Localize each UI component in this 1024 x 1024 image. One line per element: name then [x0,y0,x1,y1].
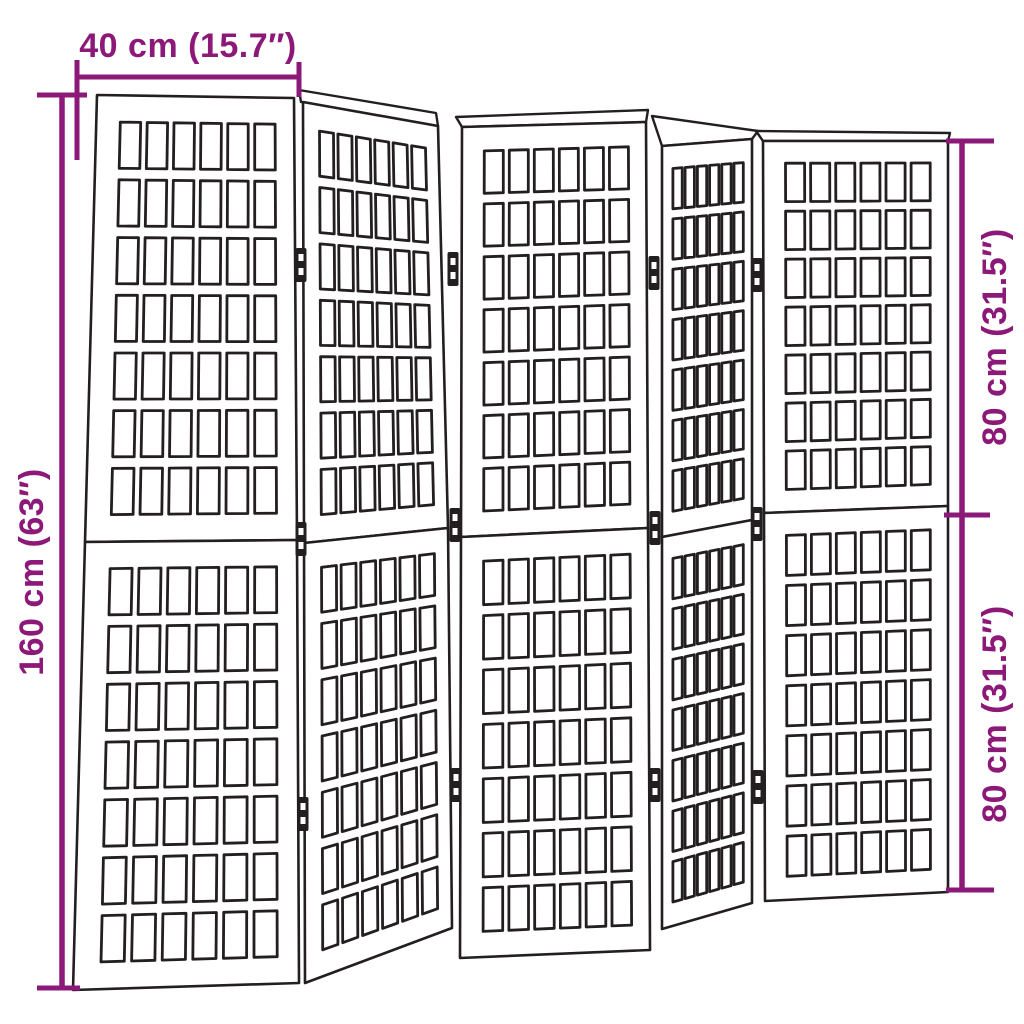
lattice-cell [115,295,137,341]
lattice-cell [534,255,553,298]
lattice-cell [193,855,216,902]
lattice-cell [886,353,905,391]
lattice-cell [534,360,553,403]
lattice-cell [105,742,129,789]
lattice-cell [886,531,905,572]
lattice-cell [560,829,580,874]
lattice-cell [710,413,719,454]
lattice-cell [673,419,682,461]
lattice-cell [226,567,248,613]
lattice-cell [198,353,220,399]
lattice-cell [697,266,706,307]
lattice-cell [322,844,337,894]
lattice-cell [401,715,416,761]
lattice-cell [342,728,357,776]
lattice-cell [342,673,357,720]
lattice-cell [108,626,131,673]
lattice-cell [255,353,276,399]
lattice-cell [340,357,355,402]
lattice-cell [611,718,631,763]
lattice-cell [734,743,743,785]
lattice-cell [697,702,706,744]
lattice-cell [255,624,277,670]
lattice-cell [225,682,248,728]
lattice-cell [171,296,193,342]
lattice-cell [585,358,604,401]
lattice-cell [611,663,631,708]
lattice-cell [812,784,831,825]
panel-2 [299,90,452,983]
lattice-cell [612,827,632,872]
lattice-cell [685,217,694,258]
lattice-cell [509,255,528,298]
lattice-cell [196,567,218,613]
lattice-cell [357,192,372,237]
lattice-cell [585,555,605,600]
lattice-cell [509,722,528,767]
lattice-cell [861,632,880,673]
lattice-cell [697,752,706,795]
lattice-cell [862,682,881,723]
lattice-cell [697,166,706,207]
lattice-cell [193,913,217,960]
lattice-cell [722,461,731,502]
lattice-cell [362,724,377,771]
lattice-cell [886,447,905,486]
lattice-cell [255,410,277,456]
lattice-cell [861,258,880,296]
lattice-cell [254,911,277,958]
lattice-cell [559,148,578,191]
lattice-cell [911,352,930,390]
lattice-cell [610,199,629,242]
lattice-cell [483,833,503,877]
lattice-cell [861,211,880,249]
lattice-cell [227,181,248,227]
lattice-cell [226,468,248,514]
lattice-cell [697,652,706,694]
lattice-cell [341,618,356,665]
lattice-cell [586,883,606,928]
lattice-cell [612,772,632,817]
lattice-cell [560,464,579,507]
lattice-cell [786,355,805,394]
lattice-cell [611,462,630,505]
lattice-cell [138,568,161,615]
lattice-cell [414,252,429,295]
lattice-cell [535,558,554,603]
lattice-cell [886,581,905,622]
lattice-cell [195,740,218,787]
lattice-cell [836,211,855,249]
panel-3 [456,110,650,958]
lattice-cell [375,140,390,185]
hinge-icon [296,522,307,556]
lattice-cell [362,832,377,880]
lattice-cell [382,827,397,875]
lattice-cell [585,305,604,348]
lattice-cell [836,583,855,624]
lattice-cell [837,733,856,774]
lattice-cell [585,411,604,454]
lattice-cell [321,413,336,459]
lattice-cell [340,412,355,457]
lattice-cell [673,168,682,209]
product-dimension-diagram: 40 cm (15.7″) 160 cm (63″) 80 cm (31.5″)… [0,0,1024,1024]
lattice-cell [255,567,277,613]
lattice-cell [837,783,856,824]
lattice-cell [195,682,218,729]
lattice-cell [396,304,411,347]
lattice-cell [734,545,743,587]
lattice-cell [341,467,356,513]
lattice-cell [586,719,606,763]
lattice-cell [685,417,694,459]
lattice-cell [685,604,694,646]
lattice-cell [697,365,706,406]
lattice-cell [509,308,528,351]
lattice-cell [722,164,731,205]
lattice-cell [412,146,427,190]
hinge-icon [296,248,307,282]
lattice-cell [862,832,881,873]
lattice-cell [722,597,731,639]
panels [73,90,950,990]
lattice-cell [135,741,158,788]
lattice-cell [227,353,248,399]
lattice-cell [836,401,855,440]
lattice-cell [734,212,743,253]
lattice-cell [322,788,337,837]
lattice-cell [560,666,580,711]
lattice-cell [534,413,553,456]
lattice-cell [483,669,503,714]
lattice-cell [722,547,731,589]
lattice-cell [585,200,604,243]
lattice-cell [509,467,528,510]
lattice-cell [361,615,376,661]
lattice-cell [673,557,682,599]
lattice-cell [911,447,930,486]
lattice-cell [886,258,905,296]
lattice-cell [111,468,134,514]
lattice-cell [911,305,930,343]
lattice-cell [165,741,188,788]
lattice-cell [609,147,628,190]
lattice-cell [142,353,164,399]
lattice-cell [560,557,579,602]
lattice-cell [377,303,392,347]
lattice-cell [861,532,880,573]
lattice-cell [861,582,880,623]
lattice-cell [199,296,221,342]
lattice-cell [255,239,276,285]
lattice-cell [710,214,719,255]
hinge-icon [450,508,461,542]
lattice-cell [861,353,880,392]
lattice-cell [734,360,743,401]
hinge-icon [752,258,763,292]
lattice-cell [484,415,503,458]
lattice-cell [811,306,830,345]
lattice-cell [584,148,603,191]
lattice-cell [254,853,277,900]
lattice-cell [422,867,438,914]
lattice-cell [395,250,410,294]
lattice-cell [697,552,706,594]
lattice-cell [685,467,694,509]
lattice-cell [862,732,881,773]
lattice-cell [509,777,529,822]
lattice-cell [673,369,682,411]
lattice-cell [484,362,503,405]
lattice-cell [169,468,191,514]
panel-top-edge [756,131,950,141]
panel-1 [73,95,299,990]
lattice-cell [141,411,163,457]
lattice-cell [861,448,880,487]
lattice-cell [722,696,731,738]
lattice-cell [361,669,376,716]
lattice-cell [402,874,418,922]
lattice-cell [321,469,336,515]
lattice-cell [136,683,159,730]
lattice-cell [811,259,830,298]
lattice-cell [911,163,930,201]
lattice-cell [611,554,631,599]
lattice-cell [401,662,416,708]
lattice-cell [812,634,831,675]
lattice-cell [358,247,373,292]
lattice-cell [535,667,555,712]
lattice-cell [378,357,393,401]
lattice-cell [787,735,806,776]
lattice-cell [163,856,187,903]
lattice-cell [227,296,248,342]
lattice-cell [673,758,682,801]
lattice-cell [397,358,412,401]
lattice-cell [255,124,276,170]
lattice-cell [134,799,158,846]
lattice-cell [114,353,136,399]
lattice-cell [102,857,126,904]
lattice-cell [861,401,880,440]
lattice-cell [586,664,606,709]
lattice-cell [911,258,930,296]
lattice-cell [255,181,276,227]
lattice-cell [509,150,528,193]
lattice-cell [342,783,357,831]
lattice-cell [911,630,930,671]
lattice-cell [673,657,682,700]
lattice-cell [483,778,503,822]
lattice-cell [226,410,248,456]
lattice-cell [812,734,831,775]
lattice-cell [356,137,371,183]
lattice-cell [132,914,156,961]
lattice-cell [418,463,434,506]
lattice-cell [196,625,219,671]
lattice-cell [484,468,503,511]
lattice-cell [837,833,856,874]
lattice-cell [320,131,334,178]
lattice-cell [118,180,140,226]
lattice-cell [166,625,189,671]
lattice-cell [339,245,354,290]
lattice-cell [484,560,503,605]
lattice-cell [585,463,604,506]
lattice-cell [560,884,580,929]
lattice-cell [787,685,806,726]
lattice-cell [585,253,604,296]
lattice-cell [322,733,337,781]
lattice-cell [194,797,217,844]
lattice-cell [685,755,694,798]
lattice-cell [734,410,743,451]
lattice-cell [228,124,249,170]
lattice-cell [509,203,528,246]
lattice-cell [560,359,579,402]
lattice-cell [685,367,694,409]
lattice-cell [358,302,373,346]
lattice-cell [911,730,930,771]
lattice-cell [338,134,352,180]
lattice-cell [787,835,806,876]
lattice-cell [722,312,731,353]
lattice-cell [534,149,553,192]
lattice-cell [673,708,682,751]
lattice-cell [560,775,580,820]
lattice-cell [710,849,719,892]
lattice-cell [685,856,694,899]
lattice-cell [811,163,830,201]
lattice-cell [786,535,805,576]
lattice-cell [710,549,719,591]
lattice-cell [376,249,391,293]
lattice-cell [697,852,706,895]
lattice-cell [786,307,805,346]
lattice-cell [560,254,579,297]
lattice-cell [362,887,377,936]
lattice-cell [101,915,125,962]
lattice-cell [673,607,682,649]
lattice-cell [685,655,694,697]
lattice-cell [144,238,166,284]
lattice-cell [394,197,409,241]
lattice-cell [227,238,248,284]
lattice-cell [420,554,435,598]
lattice-cell [811,354,830,393]
lattice-cell [722,746,731,788]
hinge-icon [451,768,462,802]
lattice-cell [886,631,905,672]
lattice-cell [483,887,503,931]
lattice-cell [224,854,247,901]
lattice-cell [610,410,629,453]
lattice-cell [786,259,805,298]
lattice-cell [323,900,338,950]
lattice-cell [685,705,694,747]
lattice-cell [133,857,157,904]
lattice-cell [836,449,855,488]
lattice-cell [911,580,930,621]
hinge-icon [752,507,763,541]
lattice-cell [710,649,719,691]
lattice-cell [382,773,397,820]
lattice-cell [197,468,219,514]
lattice-cell [786,211,805,250]
lattice-cell [117,238,139,284]
hinge-icon [650,768,661,802]
lattice-cell [722,362,731,403]
lattice-cell [509,559,528,604]
lattice-cell [886,163,905,201]
lattice-cell [421,710,436,756]
lattice-cell [560,412,579,455]
lattice-cell [886,681,905,722]
lattice-cell [376,194,391,239]
lattice-cell [786,451,805,490]
lattice-cell [484,203,503,246]
hinge-icon [753,770,764,804]
lattice-cell [320,244,335,290]
lattice-cell [320,188,334,234]
lattice-cell [342,838,357,887]
lattice-cell [322,566,337,613]
lattice-cell [162,913,186,960]
lattice-cell [862,782,881,823]
lattice-cell [722,647,731,689]
lattice-cell [911,210,930,248]
lattice-cell [535,721,555,765]
lattice-cell [911,780,930,821]
lattice-cell [722,796,731,838]
lattice-cell [172,238,194,284]
lattice-cell [710,364,719,405]
lattice-cell [145,180,166,226]
lattice-cell [170,411,192,457]
lattice-cell [610,305,629,348]
lattice-cell [173,123,194,169]
lattice-cell [361,561,376,607]
lattice-cell [911,399,930,437]
lattice-cell [886,400,905,439]
lattice-cell [836,533,855,574]
lattice-cell [254,739,277,785]
lattice-cell [710,463,719,505]
lattice-cell [509,831,529,875]
lattice-cell [812,684,831,725]
lattice-cell [722,263,731,304]
lattice-cell [811,534,830,575]
lattice-cell [673,859,682,902]
lattice-cell [611,609,631,654]
lattice-cell [322,621,337,668]
hinge-icon [448,252,459,286]
lattice-cell [484,256,503,299]
lattice-cell [697,216,706,257]
lattice-cell [113,411,135,457]
lattice-cell [359,357,374,401]
lattice-cell [734,459,743,500]
lattice-cell [413,199,428,243]
lattice-cell [484,309,503,352]
lattice-cell [484,150,503,193]
lattice-cell [421,763,437,809]
lattice-cell [382,880,397,928]
lattice-cell [710,264,719,305]
lattice-cell [119,122,141,168]
